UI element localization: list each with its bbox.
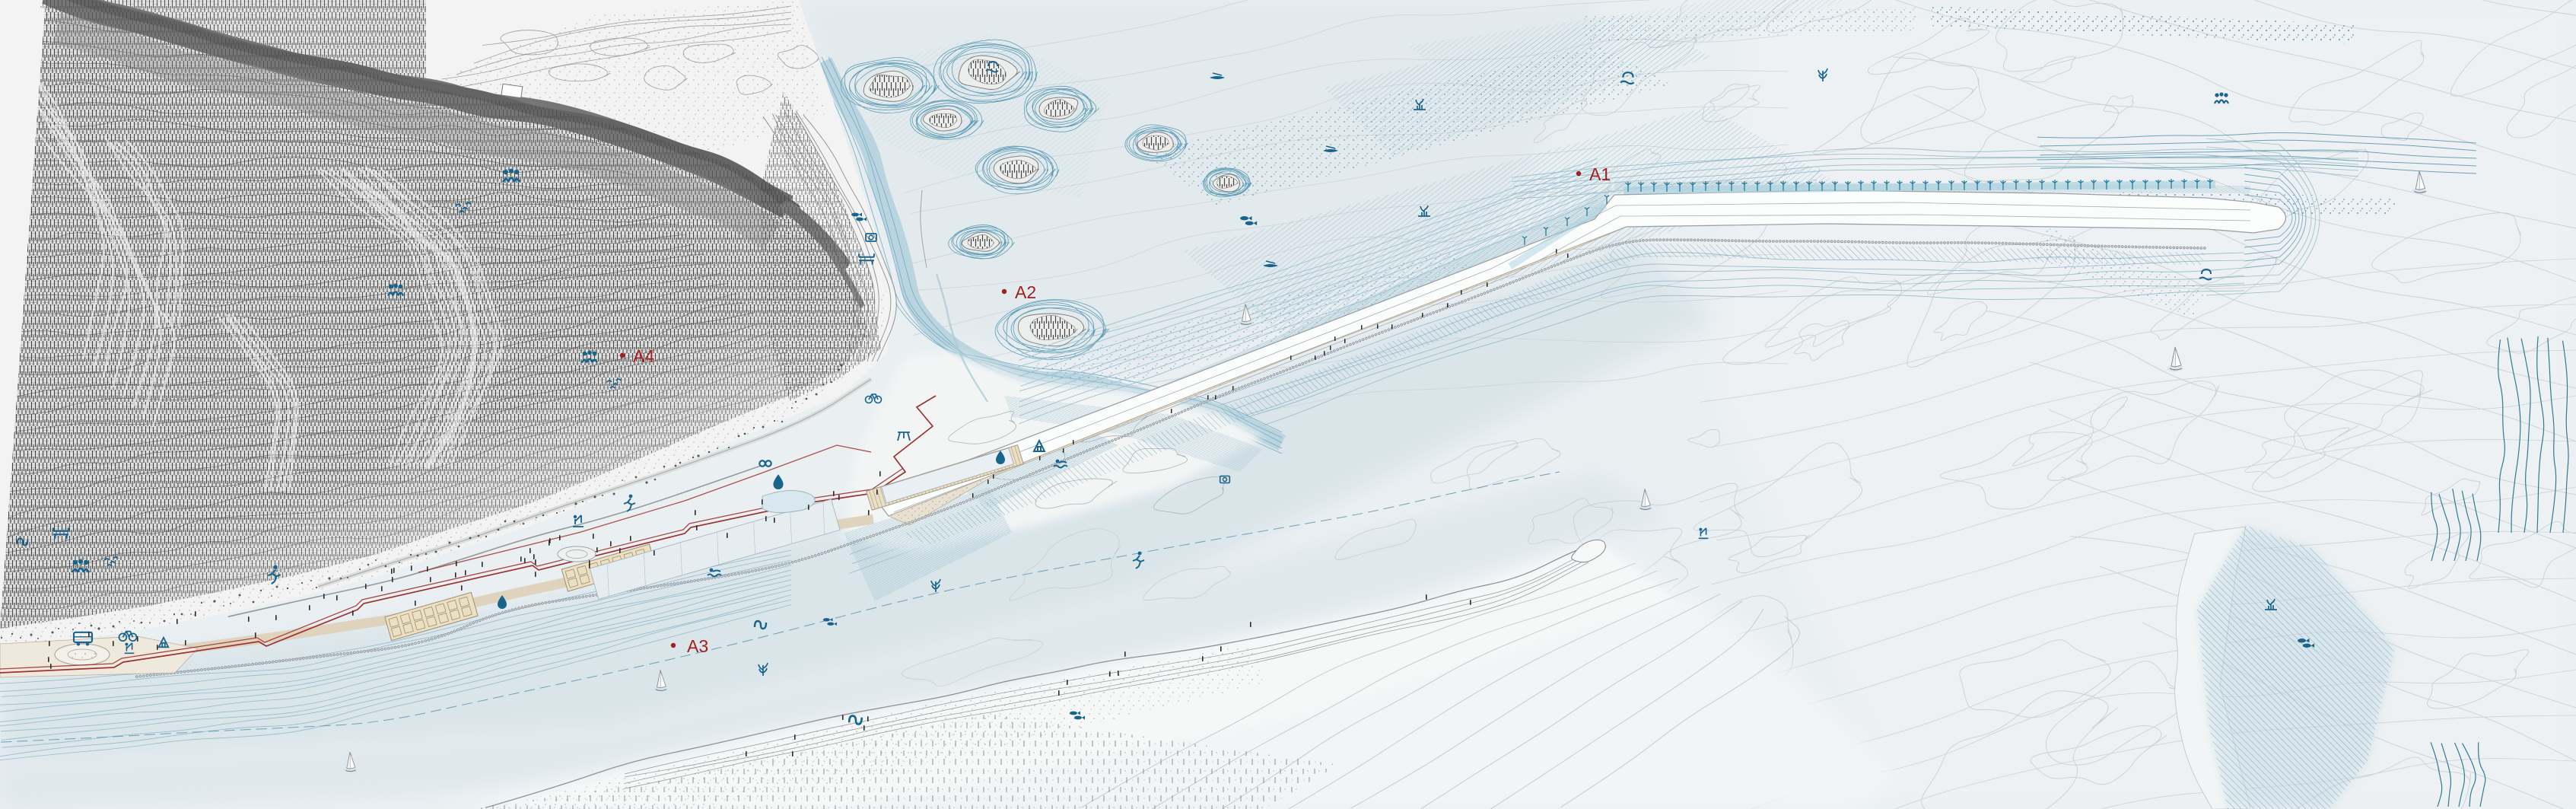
svg-text:A1: A1	[1589, 164, 1611, 184]
svg-text:A2: A2	[1015, 282, 1036, 302]
svg-text:A4: A4	[633, 346, 654, 366]
svg-text:A3: A3	[687, 636, 708, 656]
